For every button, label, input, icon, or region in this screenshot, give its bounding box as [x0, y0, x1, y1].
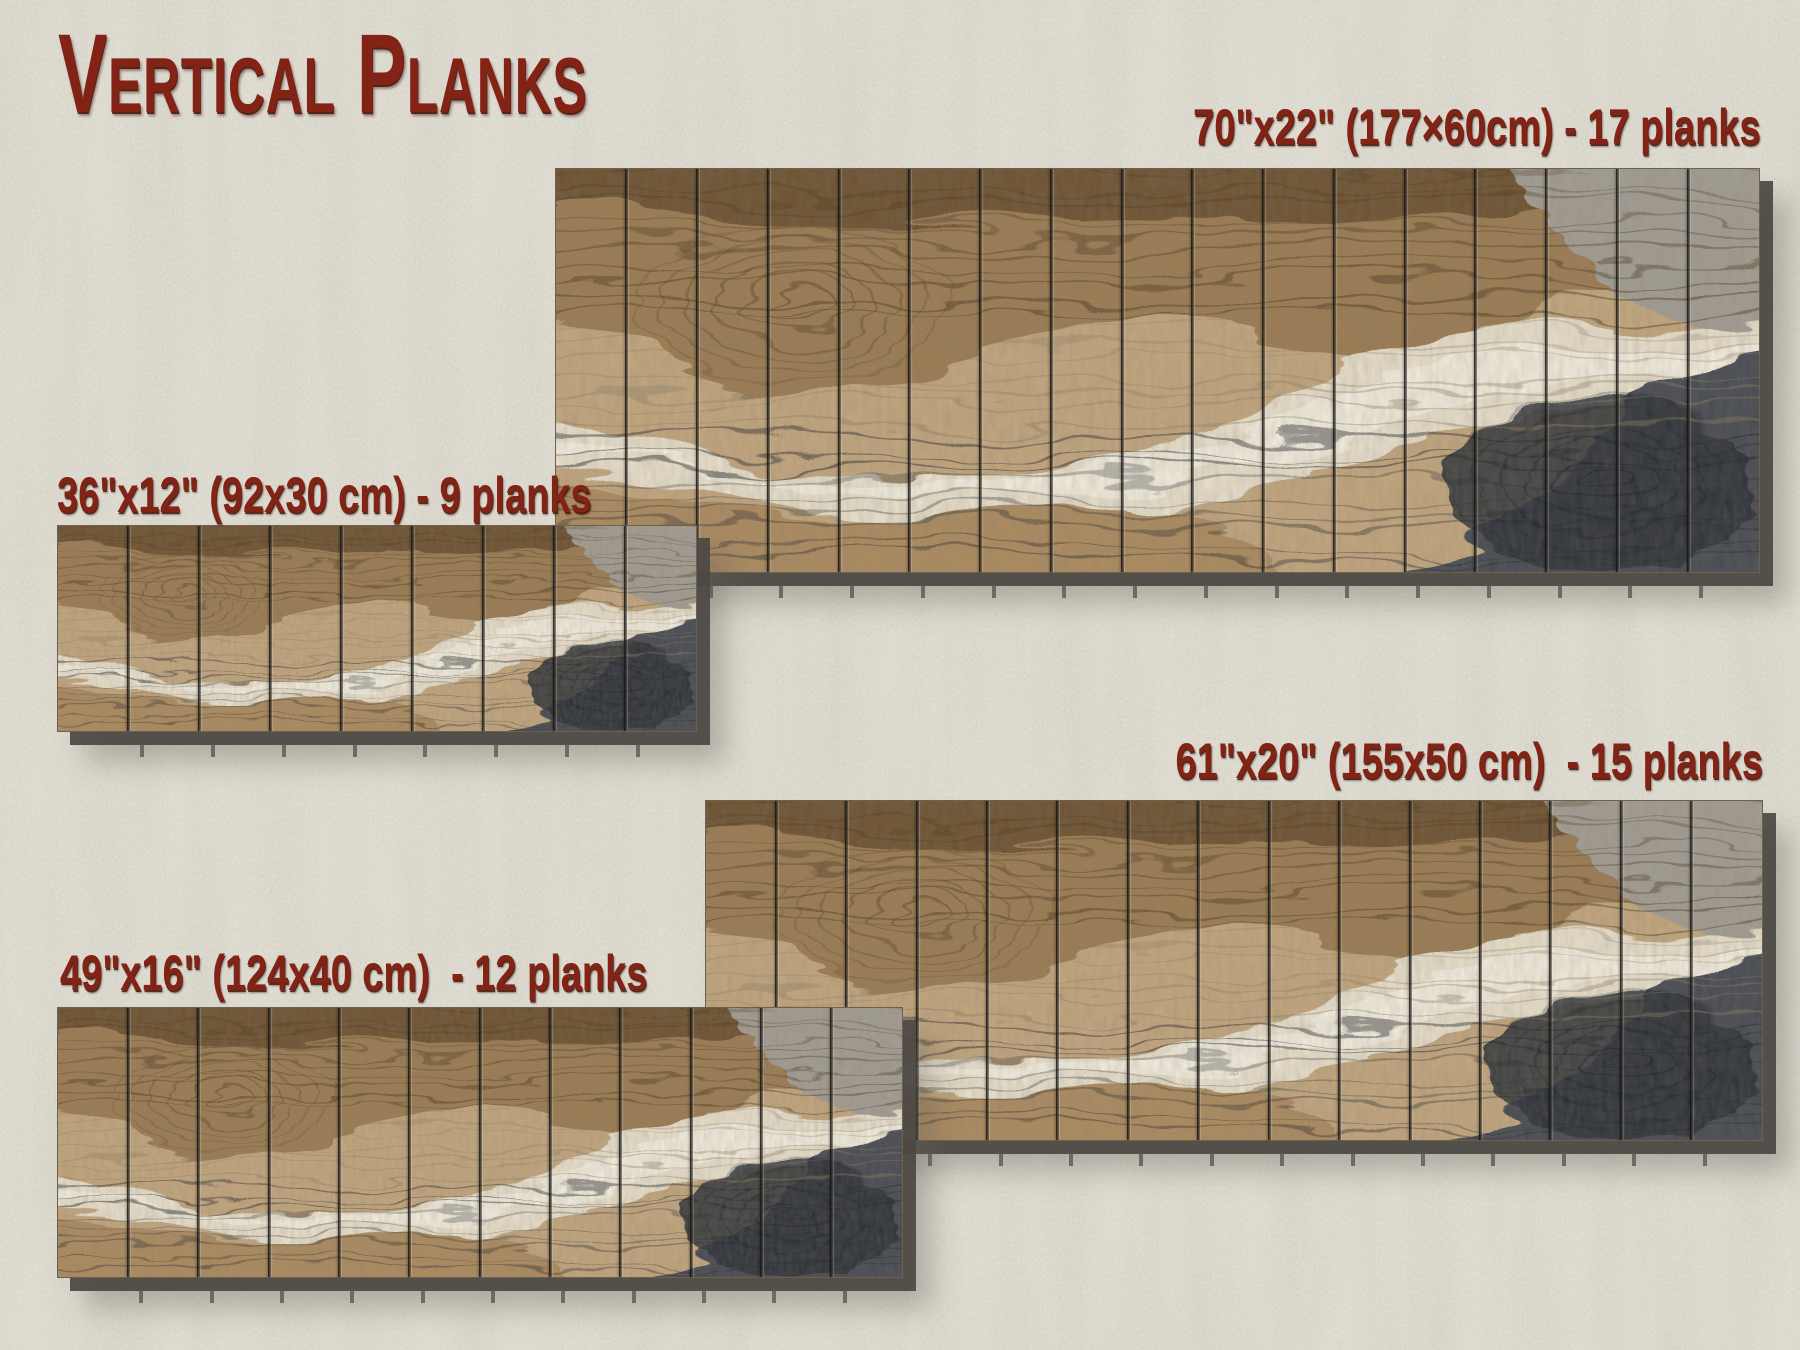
- wood-texture: [58, 526, 696, 731]
- page-title: Vertical Planks: [58, 18, 860, 130]
- wood-texture: [58, 1008, 902, 1277]
- wood-panel-49x16: [57, 1007, 903, 1278]
- panel-label-49x16: 49"x16" (124x40 cm) - 12 planks: [60, 948, 833, 998]
- wood-panel-36x12: [57, 525, 697, 732]
- panel-label-36x12: 36"x12" (92x30 cm) - 9 planks: [57, 470, 760, 520]
- panel-label-61x20: 61"x20" (155x50 cm) - 15 planks: [990, 736, 1763, 786]
- plaster-wall: Vertical Planks 70"x22" (177×60cm) - 17 …: [0, 0, 1800, 1350]
- panel-label-70x22: 70"x22" (177×60cm) - 17 planks: [1014, 102, 1760, 152]
